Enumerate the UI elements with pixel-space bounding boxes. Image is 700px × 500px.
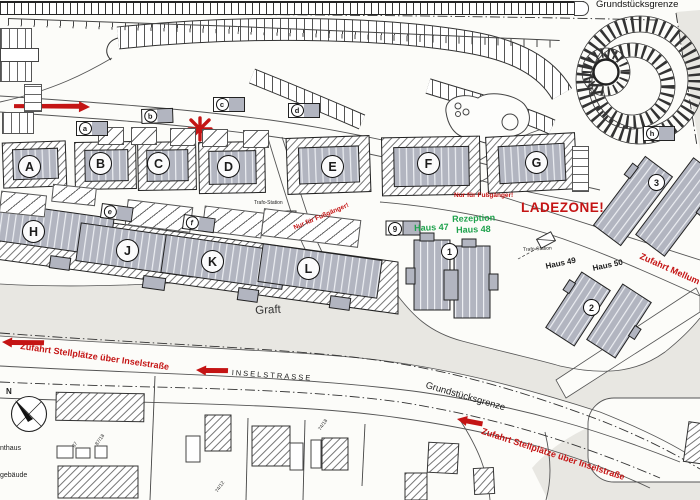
arrow-left-southeast — [456, 414, 483, 429]
building-label-B: B — [89, 152, 112, 175]
building-label-G: G — [525, 151, 548, 174]
band-hook — [107, 38, 118, 60]
building-label-D: D — [217, 155, 240, 178]
top-road-end-cap — [574, 1, 589, 16]
site-plan: A B C D E F G H J K L 1 2 3 9 a b c d e … — [0, 0, 700, 500]
haus-48-label: Haus 48 — [456, 225, 491, 235]
top-road-band — [0, 1, 584, 15]
building-label-J: J — [116, 239, 139, 262]
garage-marker-h: h — [643, 126, 675, 141]
rezeption-label: Rezeption — [452, 213, 495, 223]
small-building — [0, 48, 39, 62]
roadside-stalls — [131, 127, 157, 145]
boundary-label-top: Grundstücksgrenze — [596, 0, 678, 10]
pedestrian-only-zone-label: Nur für Fußgänger! — [454, 193, 513, 200]
building-label-H: H — [22, 220, 45, 243]
parcel-line-1 — [150, 376, 155, 500]
unit-marker-1: 1 — [441, 243, 458, 260]
garage-marker-c: c — [213, 97, 245, 112]
stalls-east-of-G — [572, 146, 589, 192]
building-label-F: F — [417, 152, 440, 175]
parcel-line-2 — [246, 418, 248, 500]
haus-47-label: Haus 47 — [414, 223, 449, 233]
unit-marker-3: 3 — [648, 174, 665, 191]
building-label-A: A — [18, 155, 41, 178]
parcel-line-4 — [362, 424, 365, 486]
garage-marker-letter: d — [291, 104, 304, 117]
compass-rose — [12, 397, 47, 432]
unit-marker-2: 2 — [583, 299, 600, 316]
building-label-K: K — [201, 250, 224, 273]
compass-north-label: N — [6, 388, 12, 396]
garage-marker-letter: b — [144, 109, 157, 122]
ladezone-label: LADEZONE! — [521, 201, 604, 215]
garage-marker-letter: e — [103, 204, 118, 219]
roadside-stalls — [202, 129, 228, 147]
building-label-L: L — [297, 257, 320, 280]
garage-marker-letter: f — [185, 215, 200, 230]
garage-marker-b: b — [141, 108, 174, 124]
parking-grid — [0, 28, 32, 50]
parking-grid — [2, 112, 34, 134]
roadside-stalls — [243, 130, 269, 148]
spiral-center-island — [594, 60, 619, 85]
garage-marker-a: a — [76, 121, 108, 136]
garage-marker-letter: c — [216, 98, 229, 111]
graft-label: Graft — [255, 305, 281, 318]
parking-column — [24, 84, 42, 112]
garage-marker-letter: a — [79, 122, 92, 135]
unit-marker-9: 9 — [388, 222, 402, 236]
plan-linework — [0, 0, 700, 500]
garage-marker-d: d — [288, 103, 320, 118]
parking-grid — [0, 60, 32, 82]
building-label-C: C — [147, 152, 170, 175]
building-label-E: E — [321, 155, 344, 178]
diagonal-stalls — [0, 191, 47, 218]
edge-label-nthaus: nthaus — [0, 445, 21, 452]
garage-marker-letter: h — [646, 127, 659, 140]
edge-label-gebaeude: gebäude — [0, 472, 27, 479]
trafo-station-label-1: Trafo-Station — [254, 201, 283, 206]
roadside-stalls — [170, 128, 196, 146]
